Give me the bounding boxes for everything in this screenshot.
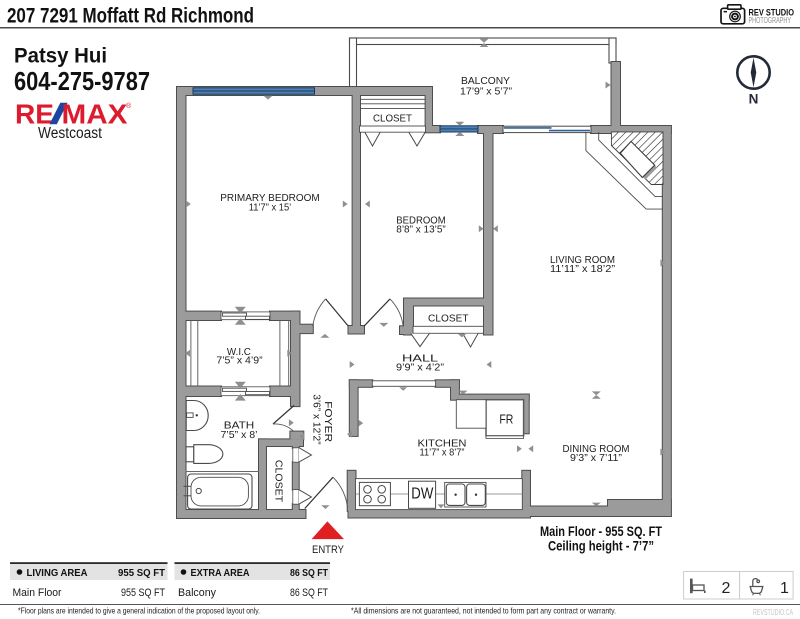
svg-text:CLOSET: CLOSET [273,460,284,503]
svg-text:LIVING AREA: LIVING AREA [27,567,88,579]
svg-text:EXTRA AREA: EXTRA AREA [191,567,250,579]
svg-text:11’7” x 15’: 11’7” x 15’ [249,203,292,214]
svg-text:9’9” x 4’2”: 9’9” x 4’2” [396,363,445,374]
svg-text:207 7291 Moffatt Rd Richmond: 207 7291 Moffatt Rd Richmond [7,5,254,28]
svg-text:Patsy Hui: Patsy Hui [14,44,107,68]
svg-text:DW: DW [411,486,434,503]
svg-text:2: 2 [722,580,731,597]
svg-text:REVSTUDIO.CA: REVSTUDIO.CA [753,607,793,617]
svg-text:CLOSET: CLOSET [428,314,469,325]
svg-text:Balcony: Balcony [178,587,216,599]
svg-text:86 SQ FT: 86 SQ FT [290,567,328,579]
svg-text:Westcoast: Westcoast [38,125,103,142]
svg-text:604-275-9787: 604-275-9787 [14,66,150,96]
svg-text:955 SQ FT: 955 SQ FT [118,567,166,579]
svg-text:N: N [749,91,759,106]
svg-text:86 SQ FT: 86 SQ FT [290,587,328,599]
svg-text:7’5” x 4’9”: 7’5” x 4’9” [216,356,263,367]
svg-text:CLOSET: CLOSET [373,114,413,125]
svg-text:PHOTOGRAPHY: PHOTOGRAPHY [749,16,792,25]
svg-text:8’8” x 13’5”: 8’8” x 13’5” [396,225,446,236]
svg-text:FR: FR [499,413,513,427]
svg-text:11’11” x 18’2”: 11’11” x 18’2” [550,264,616,275]
svg-text:955 SQ FT: 955 SQ FT [121,587,165,599]
svg-text:*Floor plans are intended to g: *Floor plans are intended to give a gene… [18,606,260,616]
svg-text:*All dimensions are not guaran: *All dimensions are not guaranteed, not … [351,606,616,616]
svg-text:9’3” x 7’11”: 9’3” x 7’11” [570,453,623,464]
svg-text:7’5” x 8’: 7’5” x 8’ [221,430,258,441]
svg-text:17’9” x 5’7”: 17’9” x 5’7” [460,86,513,97]
svg-text:ENTRY: ENTRY [312,544,345,556]
svg-text:FOYER: FOYER [322,401,333,442]
svg-text:Main Floor: Main Floor [13,587,62,599]
svg-text:11’7” x 8’7”: 11’7” x 8’7” [420,448,465,459]
svg-text:®: ® [126,102,132,110]
svg-text:1: 1 [780,580,789,597]
svg-text:3’6” x 12’2”: 3’6” x 12’2” [311,394,322,445]
svg-text:Ceiling height - 7’7”: Ceiling height - 7’7” [548,538,654,554]
